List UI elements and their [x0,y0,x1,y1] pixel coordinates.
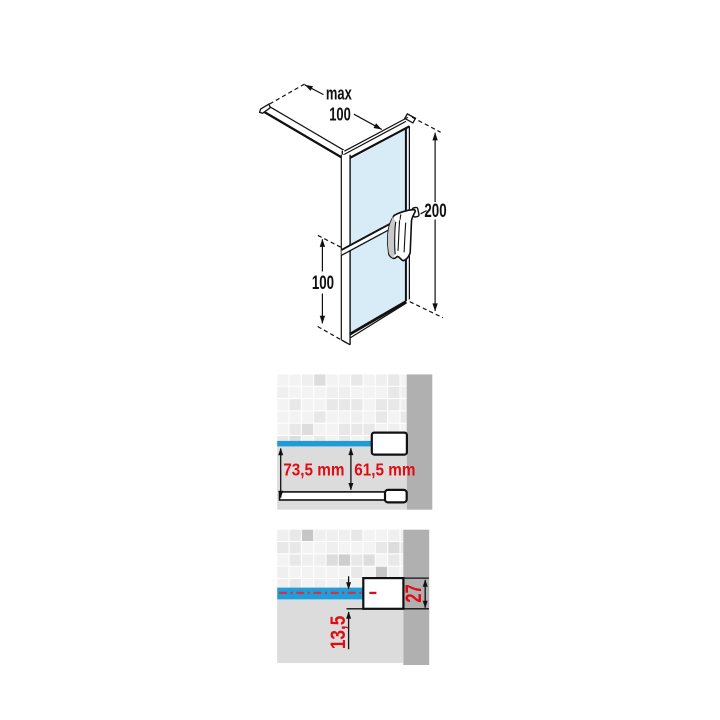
svg-text:100: 100 [329,105,351,125]
svg-text:27: 27 [402,584,427,603]
svg-text:61,5 mm: 61,5 mm [354,459,415,479]
svg-text:100: 100 [312,273,334,294]
svg-text:200: 200 [424,201,446,222]
svg-text:max: max [326,85,352,105]
svg-text:73,5 mm: 73,5 mm [283,459,344,479]
svg-text:13,5: 13,5 [326,616,350,650]
